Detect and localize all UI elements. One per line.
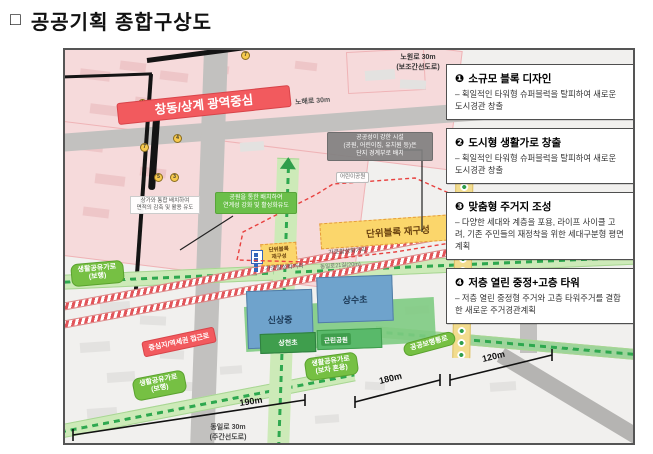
road-label-nowon: 노원로 30m (보조간선도로)	[383, 52, 453, 72]
legend-body: – 획일적인 타워형 슈퍼블럭을 탈피하여 새로운 도시경관 창출	[455, 153, 625, 176]
legend-item-1: ❶ 소규모 블록 디자인 – 획일적인 타워형 슈퍼블럭을 탈피하여 새로운 도…	[446, 64, 634, 120]
legend-panel: ❶ 소규모 블록 디자인 – 획일적인 타워형 슈퍼블럭을 탈피하여 새로운 도…	[446, 64, 634, 332]
callout-leader-line	[180, 216, 233, 250]
title-text: 공공기획 종합구상도	[31, 6, 212, 35]
legend-item-2: ❷ 도시형 생활가로 창출 – 획일적인 타워형 슈퍼블럭을 탈피하여 새로운 …	[446, 128, 634, 184]
legend-title: 소규모 블록 디자인	[468, 71, 551, 86]
public-facility-callout: 공공성이 강한 시설 (공원, 어린이집, 유치원 등)은 단지 경계부로 배치	[327, 132, 433, 161]
station-note: 상가와 통합 배치하여 면적의 감축 및 활용 유도	[130, 196, 200, 214]
concept-map: 1 2 4 7 5 3 7 신상중 상수초	[63, 48, 635, 445]
legend-title: 맞춤형 주거지 조성	[468, 199, 551, 214]
title-square-marker: □	[10, 9, 22, 30]
callout-leader-line	[397, 150, 422, 232]
legend-body: – 저층 열린 중정형 주거와 고층 타워주거를 결합한 새로운 주거경관계획	[455, 293, 625, 316]
legend-body: – 다양한 세대와 계층을 포용, 라이프 사이클 고려, 기존 주민들의 재정…	[455, 217, 625, 252]
legend-title: 저층 열린 중정+고층 타워	[468, 275, 579, 290]
legend-title: 도시형 생활가로 창출	[468, 135, 561, 150]
legend-item-3: ❸ 맞춤형 주거지 조성 – 다양한 세대와 계층을 포용, 라이프 사이클 고…	[446, 192, 634, 260]
legend-number: ❶	[455, 72, 464, 85]
legend-body: – 획일적인 타워형 슈퍼블럭을 탈피하여 새로운 도시경관 창출	[455, 89, 625, 112]
dimension-label-120: 120m	[481, 349, 506, 364]
page: □ 공공기획 종합구상도	[0, 0, 653, 454]
dimension-label-190: 190m	[239, 395, 263, 408]
page-title: □ 공공기획 종합구상도	[10, 6, 212, 35]
legend-number: ❷	[455, 136, 464, 149]
park-link-callout: 공원을 통한 배치하여 연계성 강화 및 활성화유도	[215, 192, 297, 214]
legend-item-4: ❹ 저층 열린 중정+고층 타워 – 저층 열린 중정형 주거와 고층 타워주거…	[446, 268, 634, 324]
road-label-dongil: 동일로 30m (주간선도로)	[195, 422, 261, 442]
legend-number: ❹	[455, 276, 464, 289]
dimension-line-190	[73, 394, 305, 441]
child-park-tag: 어린이공원	[336, 172, 369, 183]
living-walk-chip: 생활공유가로 (보행)	[70, 260, 124, 287]
dimension-label-180: 180m	[378, 371, 403, 386]
legend-number: ❸	[455, 200, 464, 213]
